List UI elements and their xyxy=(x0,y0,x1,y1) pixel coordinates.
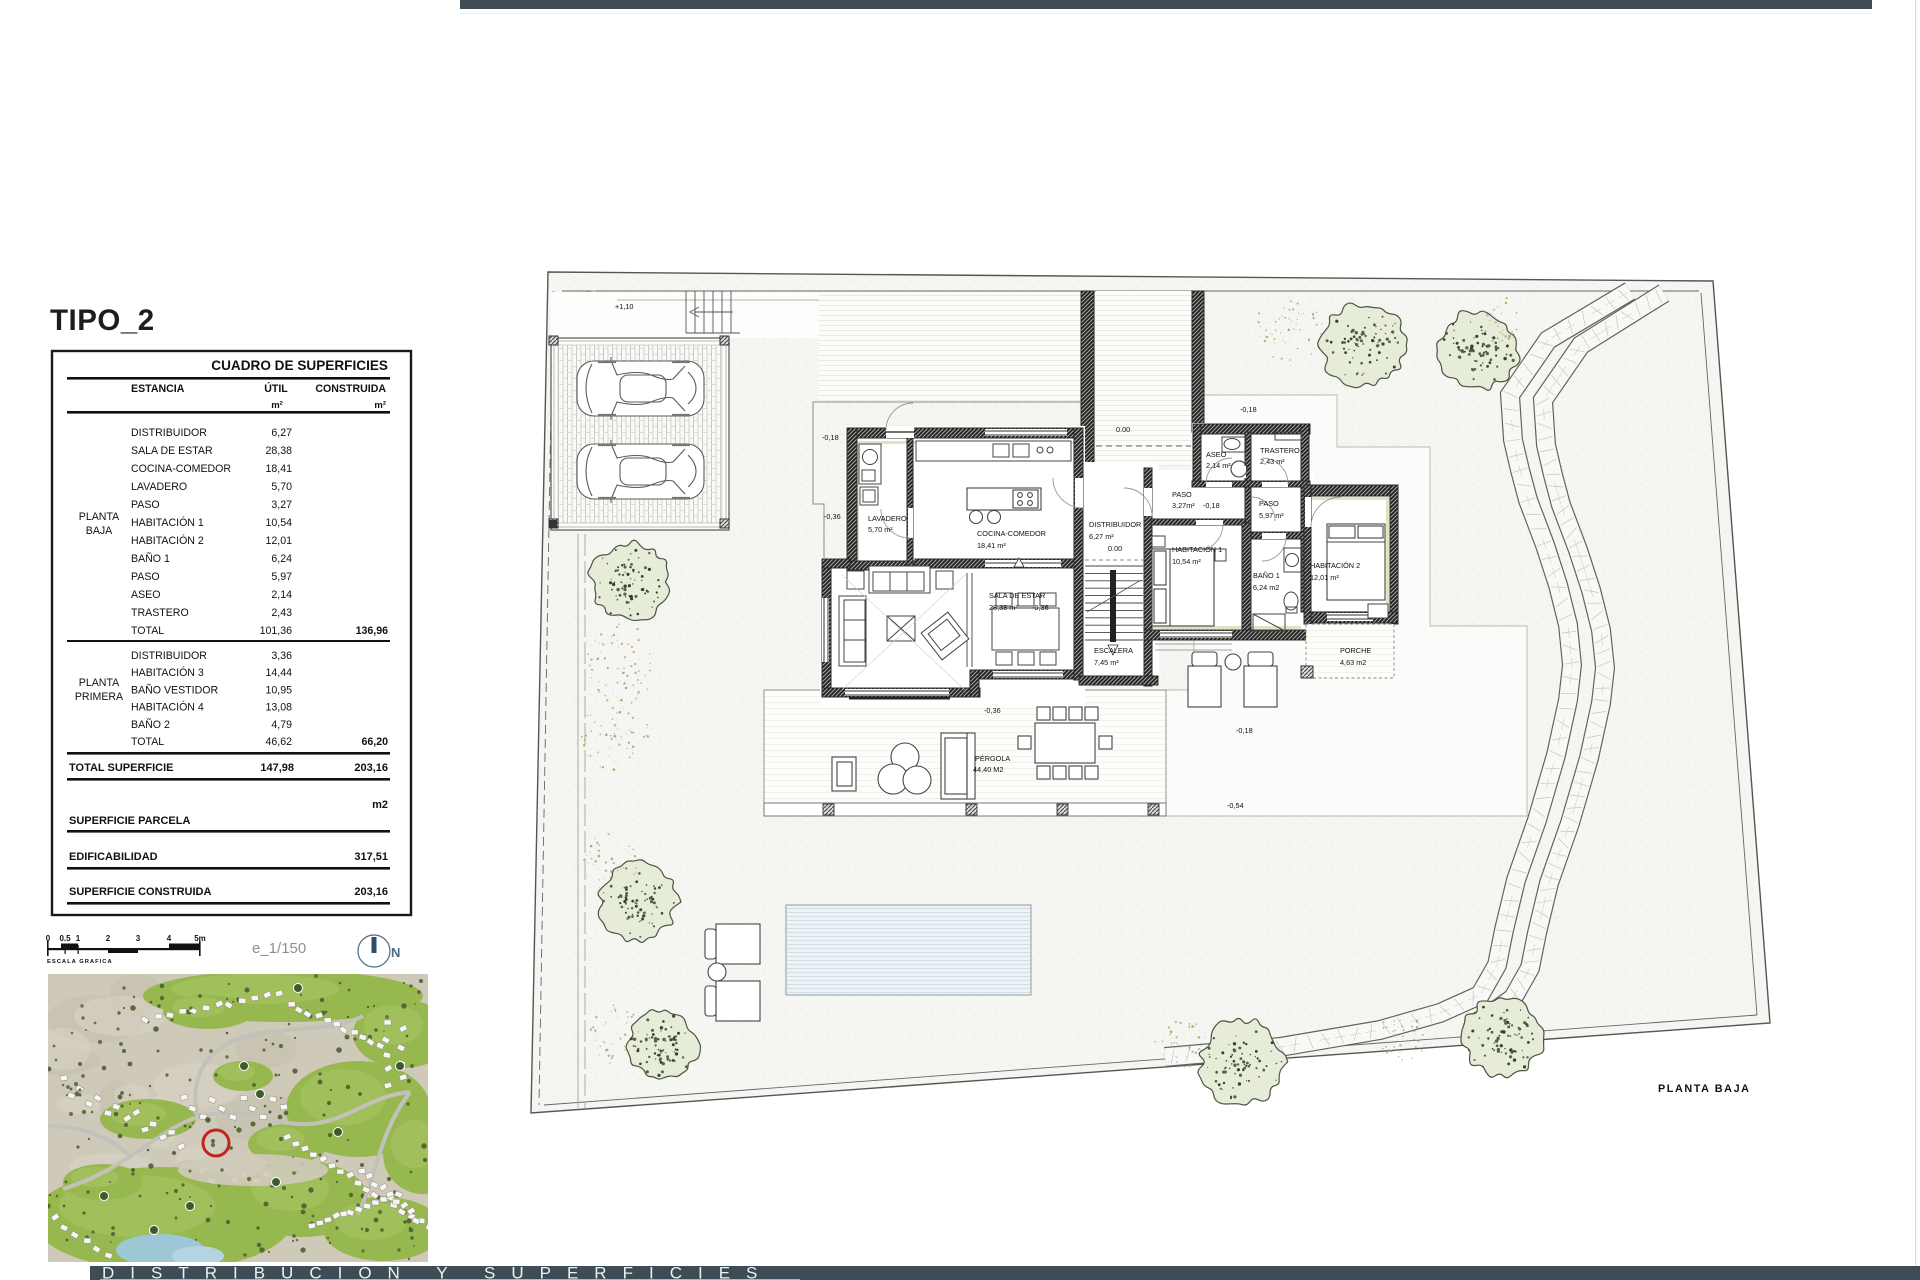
svg-text:3,36: 3,36 xyxy=(271,650,292,662)
svg-text:EDIFICABILIDAD: EDIFICABILIDAD xyxy=(69,851,158,863)
svg-text:HABITACIÓN 3: HABITACIÓN 3 xyxy=(131,666,204,679)
svg-text:COCINA-COMEDOR: COCINA-COMEDOR xyxy=(131,463,231,475)
svg-text:m²: m² xyxy=(271,400,283,411)
svg-text:66,20: 66,20 xyxy=(361,736,388,748)
svg-text:-0,54: -0,54 xyxy=(1227,801,1244,810)
svg-text:TOTAL: TOTAL xyxy=(131,625,164,637)
svg-text:DISTRIBUIDOR: DISTRIBUIDOR xyxy=(1089,520,1141,529)
svg-text:HABITACIÓN 2: HABITACIÓN 2 xyxy=(131,534,204,547)
svg-text:m2: m2 xyxy=(372,799,388,811)
svg-text:4: 4 xyxy=(167,934,172,943)
svg-text:-0,18: -0,18 xyxy=(1203,501,1220,510)
svg-text:14,44: 14,44 xyxy=(265,667,292,679)
svg-text:-0,36: -0,36 xyxy=(984,706,1001,715)
svg-text:6,27 m²: 6,27 m² xyxy=(1089,532,1114,541)
svg-text:2,14: 2,14 xyxy=(271,589,292,601)
svg-text:PLANTA: PLANTA xyxy=(79,677,120,689)
svg-text:1: 1 xyxy=(76,934,81,943)
svg-text:-0,18: -0,18 xyxy=(1236,726,1253,735)
svg-text:13,08: 13,08 xyxy=(265,702,292,714)
svg-text:TRASTERO: TRASTERO xyxy=(131,607,189,619)
svg-text:6,24: 6,24 xyxy=(271,553,292,565)
svg-text:5,70 m²: 5,70 m² xyxy=(868,525,893,534)
svg-text:10,54: 10,54 xyxy=(265,517,292,529)
svg-text:CUADRO DE SUPERFICIES: CUADRO DE SUPERFICIES xyxy=(211,358,388,373)
svg-text:CONSTRUIDA: CONSTRUIDA xyxy=(315,383,386,395)
svg-text:28,38: 28,38 xyxy=(265,445,292,457)
svg-text:28,38 m²: 28,38 m² xyxy=(989,603,1018,612)
svg-text:2,43 m²: 2,43 m² xyxy=(1260,457,1285,466)
svg-text:6,24 m2: 6,24 m2 xyxy=(1253,583,1279,592)
svg-text:HABITACIÓN 1: HABITACIÓN 1 xyxy=(131,516,204,529)
svg-text:0: 0 xyxy=(46,934,51,943)
svg-text:5,97: 5,97 xyxy=(271,571,292,583)
svg-text:ESCALERA: ESCALERA xyxy=(1094,646,1133,655)
svg-text:2,14 m²: 2,14 m² xyxy=(1206,461,1231,470)
svg-text:e_1/150: e_1/150 xyxy=(252,940,306,957)
svg-text:ASEO: ASEO xyxy=(1206,450,1227,459)
svg-text:44,40 M2: 44,40 M2 xyxy=(973,765,1003,774)
svg-text:0.00: 0.00 xyxy=(1108,544,1122,553)
svg-text:BAÑO VESTIDOR: BAÑO VESTIDOR xyxy=(131,683,218,696)
svg-text:SUPERFICIE CONSTRUIDA: SUPERFICIE CONSTRUIDA xyxy=(69,886,211,898)
svg-text:-0,36: -0,36 xyxy=(824,512,841,521)
svg-text:18,41 m²: 18,41 m² xyxy=(977,541,1006,550)
svg-text:TRASTERO: TRASTERO xyxy=(1260,446,1300,455)
svg-text:BAÑO 1: BAÑO 1 xyxy=(131,552,170,565)
svg-text:18,41: 18,41 xyxy=(265,463,292,475)
svg-text:PRIMERA: PRIMERA xyxy=(75,691,124,703)
svg-text:ASEO: ASEO xyxy=(131,589,160,601)
svg-text:DISTRIBUCION Y SUPERFICIES: DISTRIBUCION Y SUPERFICIES xyxy=(102,1264,773,1280)
svg-text:203,16: 203,16 xyxy=(354,886,388,898)
svg-text:LAVADERO: LAVADERO xyxy=(131,481,187,493)
svg-text:5,70: 5,70 xyxy=(271,481,292,493)
svg-text:-0,36: -0,36 xyxy=(1032,603,1049,612)
svg-text:HABITACIÓN 4: HABITACIÓN 4 xyxy=(131,701,204,714)
svg-text:0.5: 0.5 xyxy=(59,934,71,943)
svg-text:BAÑO 2: BAÑO 2 xyxy=(131,718,170,731)
svg-text:LAVADERO: LAVADERO xyxy=(868,514,907,523)
svg-text:BAJA: BAJA xyxy=(86,525,113,537)
svg-text:0.00: 0.00 xyxy=(1116,425,1130,434)
svg-text:TOTAL: TOTAL xyxy=(131,736,164,748)
svg-text:m²: m² xyxy=(374,400,386,411)
svg-text:46,62: 46,62 xyxy=(265,736,292,748)
svg-text:ÚTIL: ÚTIL xyxy=(264,382,288,395)
svg-text:PLANTA: PLANTA xyxy=(79,511,120,523)
svg-text:PASO: PASO xyxy=(1172,490,1192,499)
svg-text:ESTANCIA: ESTANCIA xyxy=(131,383,185,395)
svg-text:+1,10: +1,10 xyxy=(615,302,633,311)
svg-text:-0,18: -0,18 xyxy=(822,433,839,442)
svg-text:203,16: 203,16 xyxy=(354,762,388,774)
svg-text:3,27: 3,27 xyxy=(271,499,292,511)
svg-text:PASO: PASO xyxy=(131,499,160,511)
svg-text:5m: 5m xyxy=(194,934,206,943)
svg-text:PÉRGOLA: PÉRGOLA xyxy=(975,754,1010,763)
svg-text:3: 3 xyxy=(136,934,141,943)
svg-text:PLANTA BAJA: PLANTA BAJA xyxy=(1658,1083,1751,1095)
svg-text:PASO: PASO xyxy=(131,571,160,583)
svg-text:101,36: 101,36 xyxy=(260,625,293,637)
svg-text:N: N xyxy=(391,945,400,960)
svg-text:HABITACIÓN 2: HABITACIÓN 2 xyxy=(1310,561,1360,570)
svg-text:2,43: 2,43 xyxy=(271,607,292,619)
svg-text:SALA DE ESTAR: SALA DE ESTAR xyxy=(989,591,1045,600)
svg-text:4,63 m2: 4,63 m2 xyxy=(1340,658,1366,667)
svg-text:TIPO_2: TIPO_2 xyxy=(50,304,155,337)
svg-text:10,95: 10,95 xyxy=(265,684,292,696)
svg-text:HABITACIÓN 1: HABITACIÓN 1 xyxy=(1172,545,1222,554)
svg-text:136,96: 136,96 xyxy=(356,625,389,637)
svg-text:DISTRIBUIDOR: DISTRIBUIDOR xyxy=(131,650,207,662)
svg-text:10,54 m²: 10,54 m² xyxy=(1172,557,1201,566)
svg-text:COCINA-COMEDOR: COCINA-COMEDOR xyxy=(977,529,1046,538)
svg-text:6,27: 6,27 xyxy=(271,427,292,439)
svg-text:PORCHE: PORCHE xyxy=(1340,646,1371,655)
svg-text:4,79: 4,79 xyxy=(271,719,292,731)
svg-text:12,01 m²: 12,01 m² xyxy=(1310,573,1339,582)
svg-text:PASO: PASO xyxy=(1259,499,1279,508)
svg-text:317,51: 317,51 xyxy=(354,851,388,863)
svg-text:BAÑO 1: BAÑO 1 xyxy=(1253,571,1280,580)
svg-text:12,01: 12,01 xyxy=(265,535,292,547)
svg-text:2: 2 xyxy=(106,934,111,943)
svg-text:5,97 m²: 5,97 m² xyxy=(1259,511,1284,520)
svg-text:7,45 m²: 7,45 m² xyxy=(1094,658,1119,667)
svg-text:SALA DE ESTAR: SALA DE ESTAR xyxy=(131,445,213,457)
svg-text:ESCALA GRAFICA: ESCALA GRAFICA xyxy=(47,959,113,965)
svg-text:-0,18: -0,18 xyxy=(1240,405,1257,414)
svg-text:TOTAL SUPERFICIE: TOTAL SUPERFICIE xyxy=(69,762,174,774)
svg-text:147,98: 147,98 xyxy=(260,762,294,774)
svg-text:SUPERFICIE PARCELA: SUPERFICIE PARCELA xyxy=(69,815,190,827)
svg-text:DISTRIBUIDOR: DISTRIBUIDOR xyxy=(131,427,207,439)
svg-text:3,27m²: 3,27m² xyxy=(1172,501,1195,510)
